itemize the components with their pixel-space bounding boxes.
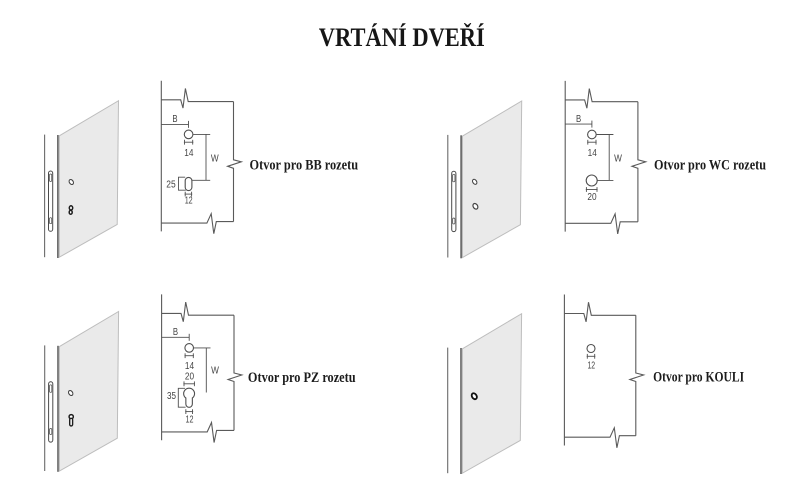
svg-text:Otvor pro WC rozetu: Otvor pro WC rozetu [654, 158, 766, 174]
svg-text:14: 14 [588, 148, 598, 159]
svg-text:B: B [172, 114, 178, 125]
svg-text:12: 12 [186, 415, 194, 426]
svg-text:W: W [614, 154, 622, 165]
svg-text:12: 12 [587, 360, 595, 371]
svg-text:B: B [173, 327, 179, 338]
svg-text:20: 20 [185, 372, 195, 383]
svg-text:W: W [211, 365, 219, 376]
svg-text:14: 14 [184, 148, 194, 159]
svg-text:20: 20 [587, 192, 597, 203]
svg-text:B: B [576, 114, 582, 125]
svg-text:14: 14 [185, 361, 195, 372]
svg-text:Otvor pro BB rozetu: Otvor pro BB rozetu [250, 158, 359, 174]
svg-text:W: W [211, 154, 219, 165]
svg-text:35: 35 [167, 391, 176, 402]
svg-text:Otvor pro PZ rozetu: Otvor pro PZ rozetu [248, 370, 356, 386]
svg-text:12: 12 [185, 195, 193, 206]
svg-text:Otvor pro KOULI: Otvor pro KOULI [653, 369, 744, 385]
svg-text:VRTÁNÍ DVEŘÍ: VRTÁNÍ DVEŘÍ [319, 23, 485, 52]
svg-text:25: 25 [166, 180, 176, 191]
